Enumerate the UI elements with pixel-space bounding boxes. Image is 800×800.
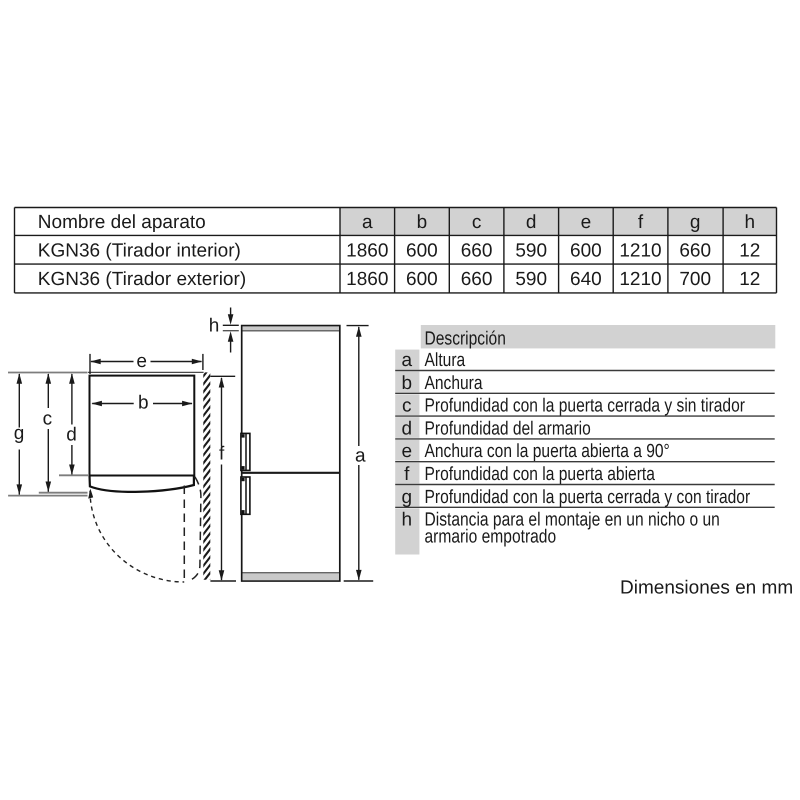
svg-text:Nombre del aparato: Nombre del aparato [38, 212, 206, 233]
svg-text:d: d [402, 418, 413, 439]
svg-text:Anchura con la puerta abierta: Anchura con la puerta abierta a 90° [425, 441, 670, 462]
svg-text:c: c [402, 396, 412, 417]
svg-text:660: 660 [679, 240, 711, 261]
svg-text:f: f [638, 212, 644, 233]
svg-text:640: 640 [570, 269, 602, 290]
svg-text:e: e [581, 212, 592, 233]
svg-text:h: h [402, 510, 413, 531]
svg-text:1210: 1210 [619, 269, 661, 290]
svg-text:b: b [138, 392, 149, 413]
svg-text:700: 700 [679, 269, 711, 290]
svg-text:Altura: Altura [425, 350, 466, 371]
svg-text:Dimensiones en mm: Dimensiones en mm [620, 578, 793, 599]
svg-text:e: e [402, 441, 413, 462]
svg-text:660: 660 [461, 240, 493, 261]
svg-text:KGN36 (Tirador exterior): KGN36 (Tirador exterior) [38, 269, 246, 290]
svg-text:a: a [402, 350, 413, 371]
svg-text:Profundidad con la puerta abie: Profundidad con la puerta abierta [425, 464, 656, 485]
svg-text:c: c [43, 408, 53, 429]
svg-text:Anchura: Anchura [425, 373, 483, 394]
svg-text:1860: 1860 [346, 240, 388, 261]
svg-text:e: e [136, 351, 147, 372]
svg-text:g: g [14, 423, 25, 444]
svg-text:g: g [690, 212, 701, 233]
svg-text:b: b [402, 373, 413, 394]
svg-text:KGN36 (Tirador interior): KGN36 (Tirador interior) [38, 240, 241, 261]
svg-text:1210: 1210 [619, 240, 661, 261]
svg-text:12: 12 [739, 269, 760, 290]
svg-text:12: 12 [739, 240, 760, 261]
svg-text:a: a [355, 446, 366, 467]
svg-text:armario empotrado: armario empotrado [425, 526, 557, 547]
svg-text:590: 590 [515, 240, 547, 261]
svg-text:c: c [472, 212, 482, 233]
svg-text:Profundidad del armario: Profundidad del armario [425, 418, 591, 439]
svg-text:h: h [209, 316, 220, 337]
svg-text:f: f [404, 464, 410, 485]
svg-text:600: 600 [406, 269, 438, 290]
svg-text:Profundidad con la puerta cerr: Profundidad con la puerta cerrada y sin … [425, 396, 746, 417]
svg-text:h: h [745, 212, 756, 233]
svg-text:660: 660 [461, 269, 493, 290]
svg-text:b: b [417, 212, 428, 233]
svg-text:a: a [362, 212, 373, 233]
svg-text:g: g [402, 487, 413, 508]
svg-text:590: 590 [515, 269, 547, 290]
svg-text:Descripción: Descripción [425, 329, 506, 350]
svg-text:600: 600 [406, 240, 438, 261]
svg-text:600: 600 [570, 240, 602, 261]
svg-text:d: d [66, 425, 77, 446]
svg-text:f: f [219, 444, 225, 465]
svg-text:Profundidad con la puerta cerr: Profundidad con la puerta cerrada y con … [425, 487, 751, 508]
svg-text:d: d [526, 212, 537, 233]
svg-text:1860: 1860 [346, 269, 388, 290]
